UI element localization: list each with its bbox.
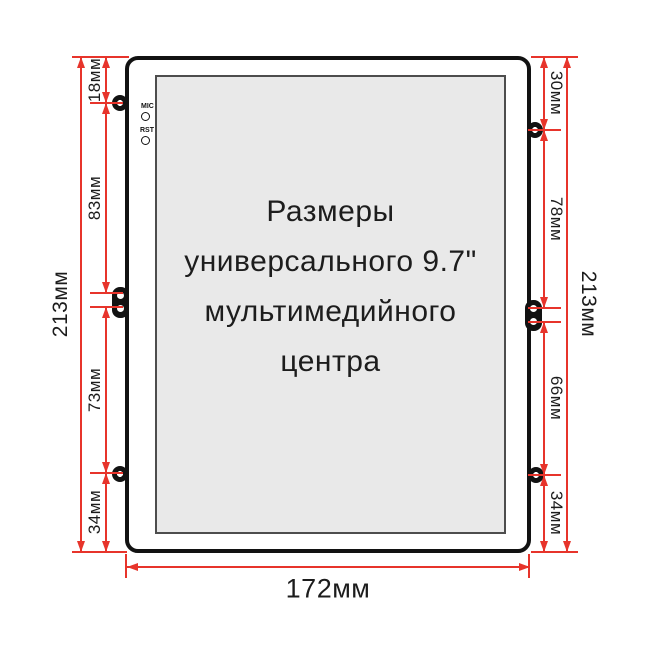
dim-arrow-icon	[540, 130, 548, 141]
dim-arrow-icon	[519, 563, 530, 571]
dim-arrow-icon	[540, 119, 548, 130]
dim-arrow-icon	[540, 464, 548, 475]
dim-label-left-73: 73мм	[85, 368, 105, 412]
dim-label-bottom-width: 172мм	[286, 574, 371, 605]
dim-line-right-total	[566, 57, 568, 552]
dim-arrow-icon	[540, 322, 548, 333]
dim-arrow-icon	[563, 57, 571, 68]
dim-label-left-34: 34мм	[85, 490, 105, 534]
dimension-diagram: Размеры универсального 9.7" мультимедийн…	[0, 0, 650, 648]
dim-line-right-chain	[543, 322, 545, 552]
mic-hole-icon	[141, 112, 150, 121]
dim-arrow-icon	[563, 541, 571, 552]
dim-arrow-icon	[127, 563, 138, 571]
left-bottom-connector-icon	[112, 466, 128, 482]
dim-label-right-78: 78мм	[546, 197, 566, 241]
dim-line-bottom-width	[127, 566, 530, 568]
title-line-3: мультимедийного	[184, 287, 477, 337]
dim-arrow-icon	[540, 475, 548, 486]
device-screen: Размеры универсального 9.7" мультимедийн…	[155, 75, 506, 534]
dim-arrow-icon	[102, 282, 110, 293]
dim-label-right-30: 30мм	[546, 71, 566, 115]
dim-label-left-83: 83мм	[85, 176, 105, 220]
diagram-title: Размеры универсального 9.7" мультимедийн…	[184, 187, 477, 387]
dim-label-right-66: 66мм	[546, 376, 566, 420]
dim-line-right-chain	[543, 57, 545, 308]
dim-arrow-icon	[102, 103, 110, 114]
title-line-4: центра	[184, 337, 477, 387]
dim-arrow-icon	[540, 541, 548, 552]
dim-arrow-icon	[540, 297, 548, 308]
rst-label: RST	[140, 127, 154, 134]
dim-label-left-18: 18мм	[85, 58, 105, 102]
dim-label-right-total: 213мм	[576, 271, 600, 337]
dim-arrow-icon	[102, 307, 110, 318]
dim-arrow-icon	[77, 541, 85, 552]
dim-arrow-icon	[102, 462, 110, 473]
dim-arrow-icon	[102, 473, 110, 484]
rst-hole-icon	[141, 136, 150, 145]
dim-arrow-icon	[102, 541, 110, 552]
dim-line-left-chain	[105, 307, 107, 552]
dim-arrow-icon	[77, 57, 85, 68]
mic-label: MIC	[141, 103, 154, 110]
dim-label-left-total: 213мм	[49, 271, 73, 337]
dim-line-left-total	[80, 57, 82, 552]
dim-label-right-34: 34мм	[546, 491, 566, 535]
title-line-2: универсального 9.7"	[184, 237, 477, 287]
title-line-1: Размеры	[184, 187, 477, 237]
dim-arrow-icon	[540, 57, 548, 68]
